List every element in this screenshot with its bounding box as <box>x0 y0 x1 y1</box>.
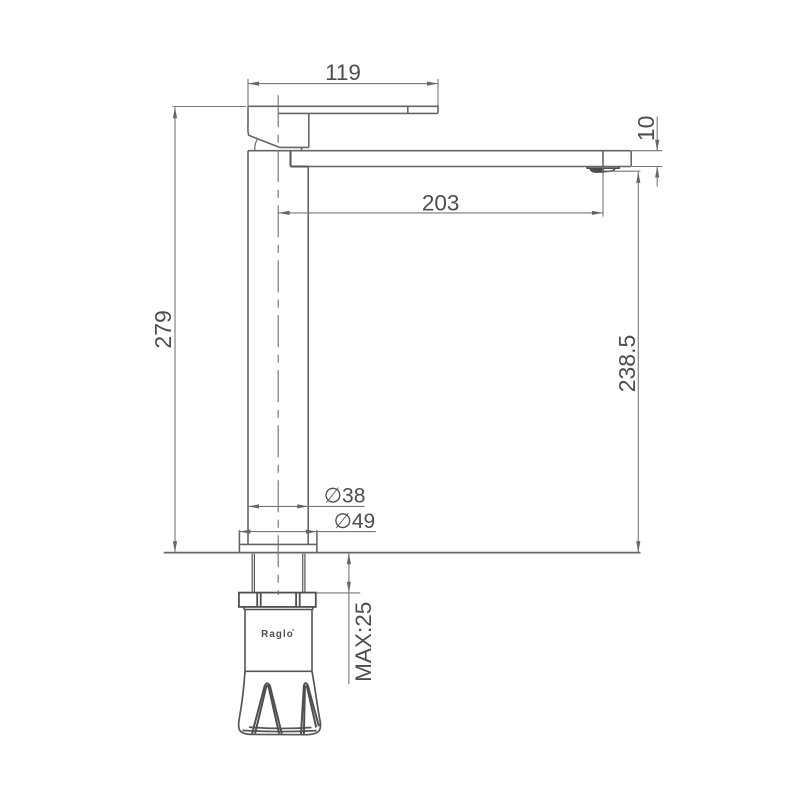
svg-text:MAX:25: MAX:25 <box>351 602 376 682</box>
svg-text:238.5: 238.5 <box>614 335 640 393</box>
svg-text:10: 10 <box>633 116 659 142</box>
svg-text:279: 279 <box>150 310 176 348</box>
svg-text:119: 119 <box>325 60 361 85</box>
svg-text:Raglo: Raglo <box>261 629 294 640</box>
svg-text:203: 203 <box>422 190 460 215</box>
svg-text:∅38: ∅38 <box>324 485 366 508</box>
svg-text:∅49: ∅49 <box>334 510 376 533</box>
